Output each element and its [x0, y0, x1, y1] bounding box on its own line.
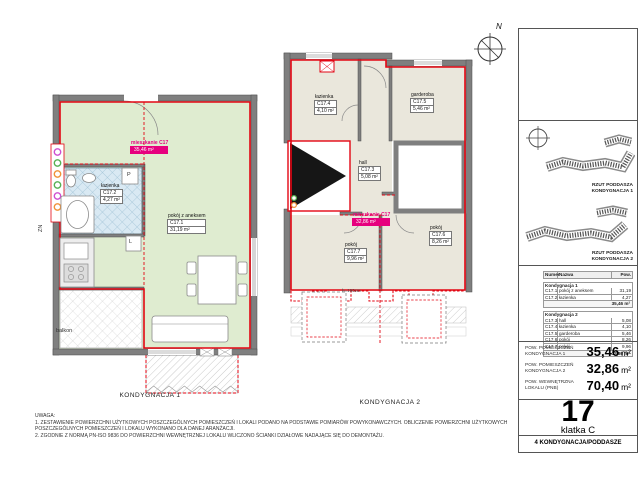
plan-sheet: mieszkanie C17 35,46 m² pokój z aneksem … — [0, 0, 640, 480]
siteplan1-caption: RZUT PODDASZA KONDYGNACJA 1 — [592, 183, 633, 194]
table-row: C17.3 hall 5,08 — [543, 318, 633, 325]
balcony-door — [148, 349, 196, 355]
window-top-right — [414, 60, 442, 66]
sidebar-blank-section — [519, 29, 637, 120]
area-row-k2: POW. POMIESZCZEŃ KONDYGNACJA 2 32,86m² — [519, 359, 637, 376]
stair-void — [288, 141, 350, 211]
siteplan2-caption: RZUT PODDASZA KONDYGNACJA 2 — [592, 251, 633, 262]
sidebar-floor-section: 4 KONDYGNACJA/PODDASZE — [519, 435, 637, 452]
apartment-label-k1: mieszkanie C17 35,46 m² — [130, 140, 168, 154]
apartment-name: mieszkanie C17 — [130, 140, 168, 146]
window-top-left — [306, 53, 332, 59]
table-group-title: Kondygnacja 1 — [543, 282, 633, 289]
room-label-pokoj-c177: pokój C17.79,96 m² — [344, 242, 367, 263]
room-label-hall: hall C17.35,08 m² — [358, 160, 381, 181]
sidebar-siteplans-section: RZUT PODDASZA KONDYGNACJA 1 RZUT PODDASZ… — [519, 120, 637, 265]
balcony-marker: balkon — [56, 328, 72, 334]
open-void — [396, 143, 464, 211]
notes-line-1: 1. ZESTAWIENIE POWIERZCHNI UŻYTKOWYCH PO… — [35, 420, 513, 432]
area-row-internal: POW. WEWNĘTRZNA LOKALU (PNB) 70,40m² — [519, 376, 637, 393]
apartment-number: 17 — [519, 398, 637, 426]
washer-marker: P — [127, 172, 131, 178]
balcony-terrace — [146, 355, 238, 393]
room-table-header: Numer Nazwa Pow. — [543, 271, 633, 279]
notes-title: UWAGA: — [35, 413, 513, 419]
compass-icon — [470, 22, 512, 68]
plan2-caption: KONDYGNACJA 2 — [326, 399, 454, 406]
table-row: C17.5 garderoba 5,46 — [543, 331, 633, 338]
notes-line-2: 2. ZGODNIE Z NORMĄ PN-ISO 9836 DO POWIER… — [35, 433, 513, 439]
plan1-caption: KONDYGNACJA 1 — [86, 392, 214, 399]
table-row: C17.1 pokój z aneksem 31,19 — [543, 288, 633, 295]
window-right — [251, 238, 257, 296]
area-row-k1: POW. POMIESZCZEŃ KONDYGNACJA 1 35,46m² — [519, 342, 637, 359]
fridge-marker: L — [129, 239, 132, 245]
sidebar-areas-section: POW. POMIESZCZEŃ KONDYGNACJA 1 35,46m² P… — [519, 341, 637, 399]
height-note: h=190cm — [342, 288, 361, 293]
floor-label: 4 KONDYGNACJA/PODDASZE — [519, 436, 637, 446]
siteplan-kondygnacja-1 — [543, 127, 635, 179]
compass: N — [470, 22, 512, 68]
apartment-label-k2: mieszkanie C17 32,86 m² — [352, 212, 390, 226]
room-label-pokoj-c176: pokój C17.68,26 m² — [429, 225, 452, 246]
riser-marker: ZN — [38, 225, 44, 232]
chimney — [320, 61, 334, 72]
room-label-lazienka-k1: łazienka C17.24,27 m² — [100, 183, 123, 204]
floorplan-kondygnacja-1 — [48, 88, 268, 403]
room-label-garderoba: garderoba C17.55,46 m² — [410, 92, 434, 113]
room-label-pokoj-z-aneksem: pokój z aneksem C17.131,19 m² — [167, 213, 206, 234]
apartment-area: 35,46 m² — [130, 146, 168, 154]
table-group-title: Kondygnacja 2 — [543, 311, 633, 318]
table-row: C17.4 łazienka 4,10 — [543, 324, 633, 331]
title-block-sidebar: RZUT PODDASZA KONDYGNACJA 1 RZUT PODDASZ… — [518, 28, 638, 453]
entrance-opening — [124, 94, 158, 102]
table-total-k1: 35,46 m² — [543, 301, 633, 308]
room-label-lazienka-k2: łazienka C17.44,10 m² — [314, 94, 337, 115]
siteplan-kondygnacja-2 — [523, 201, 633, 249]
north-label: N — [496, 22, 502, 31]
table-row: C17.2 łazienka 4,27 — [543, 295, 633, 302]
notes-block: UWAGA: 1. ZESTAWIENIE POWIERZCHNI UŻYTKO… — [35, 413, 513, 440]
sidebar-room-table-section: Numer Nazwa Pow. Kondygnacja 1 C17.1 pok… — [519, 265, 637, 341]
sidebar-apartment-number-section: 17 klatka C — [519, 399, 637, 435]
